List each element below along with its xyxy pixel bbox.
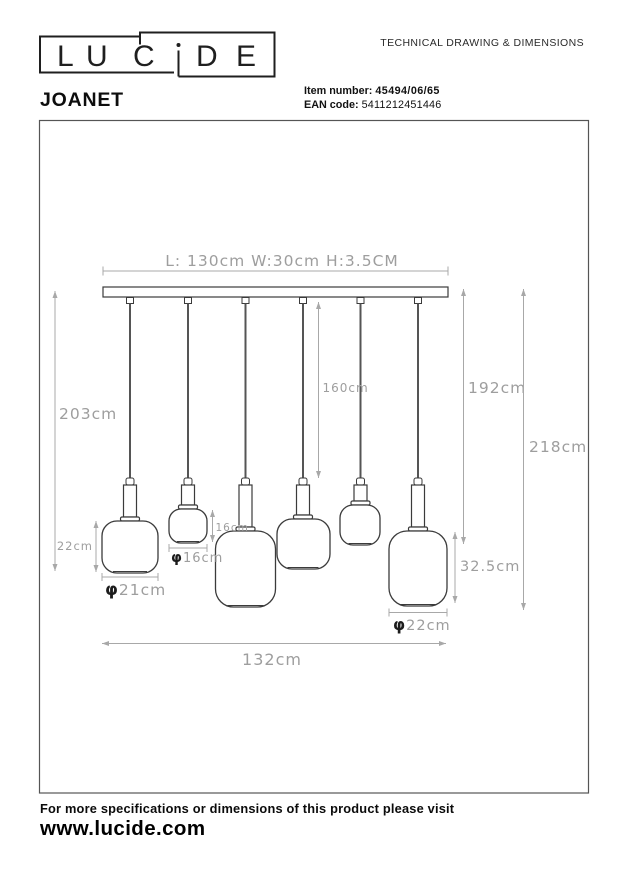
socket-cap [414, 478, 422, 485]
dim-label-132cm: 132cm [242, 650, 302, 669]
ceiling-bar [103, 287, 448, 297]
socket-cap [299, 478, 307, 485]
cord-connector [185, 298, 192, 304]
socket-tube [412, 485, 425, 527]
dim-label-22cm: 22cm [57, 539, 93, 553]
lamp-shade-4 [277, 519, 330, 569]
socket-tube [354, 485, 367, 501]
dim-label-dia-22cm: φ22cm [393, 616, 451, 634]
drawing-border [40, 121, 589, 794]
socket-tube [239, 485, 252, 527]
socket-cap [242, 478, 250, 485]
dim-label-160cm: 160cm [323, 381, 369, 395]
pendant-5 [340, 298, 380, 546]
socket-cap [357, 478, 365, 485]
pendant-4 [277, 298, 330, 570]
cord-connector [357, 298, 364, 304]
dim-label-32-5cm: 32.5cm [460, 559, 520, 575]
pendant-3 [216, 298, 276, 608]
lamp-shade-1 [102, 521, 158, 573]
lamp-shade-2 [169, 509, 207, 543]
cord-connector [242, 298, 249, 304]
dim-label-dia-21cm: φ21cm [105, 580, 166, 599]
pendant-1 [102, 298, 158, 574]
dim-label-dia-16cm: φ16cm [171, 550, 223, 566]
pendant-6 [389, 298, 447, 607]
cord-connector [300, 298, 307, 304]
brand-letter: C [133, 40, 155, 73]
brand-letter: E [236, 40, 256, 73]
socket-tube [124, 485, 137, 517]
lamp-shade-5 [340, 505, 380, 545]
cord-connector [127, 298, 134, 304]
dim-label-16cm: 16cm [216, 522, 249, 534]
dim-label-203cm: 203cm [59, 405, 117, 423]
lucide-logo: L U C D E [40, 33, 275, 77]
dim-label-218cm: 218cm [529, 438, 587, 456]
lamp-shade-3 [216, 531, 276, 607]
socket-tube [297, 485, 310, 515]
lamp-shade-6 [389, 531, 447, 606]
socket-cap [126, 478, 134, 485]
technical-drawing-canvas: L U C D E L: 130cm W:30cm H:3.5CM [0, 0, 620, 877]
socket-tube [182, 485, 195, 505]
dim-label-fixture-size: L: 130cm W:30cm H:3.5CM [165, 252, 399, 270]
cord-connector [415, 298, 422, 304]
logo-i-dot [177, 43, 181, 47]
brand-letter: D [196, 40, 218, 73]
technical-drawing-sheet: TECHNICAL DRAWING & DIMENSIONS JOANET It… [0, 0, 620, 877]
pendant-2 [169, 298, 207, 544]
socket-cap [184, 478, 192, 485]
brand-letter: U [86, 40, 108, 73]
dim-label-192cm: 192cm [468, 379, 526, 397]
brand-letter: L [57, 40, 74, 73]
